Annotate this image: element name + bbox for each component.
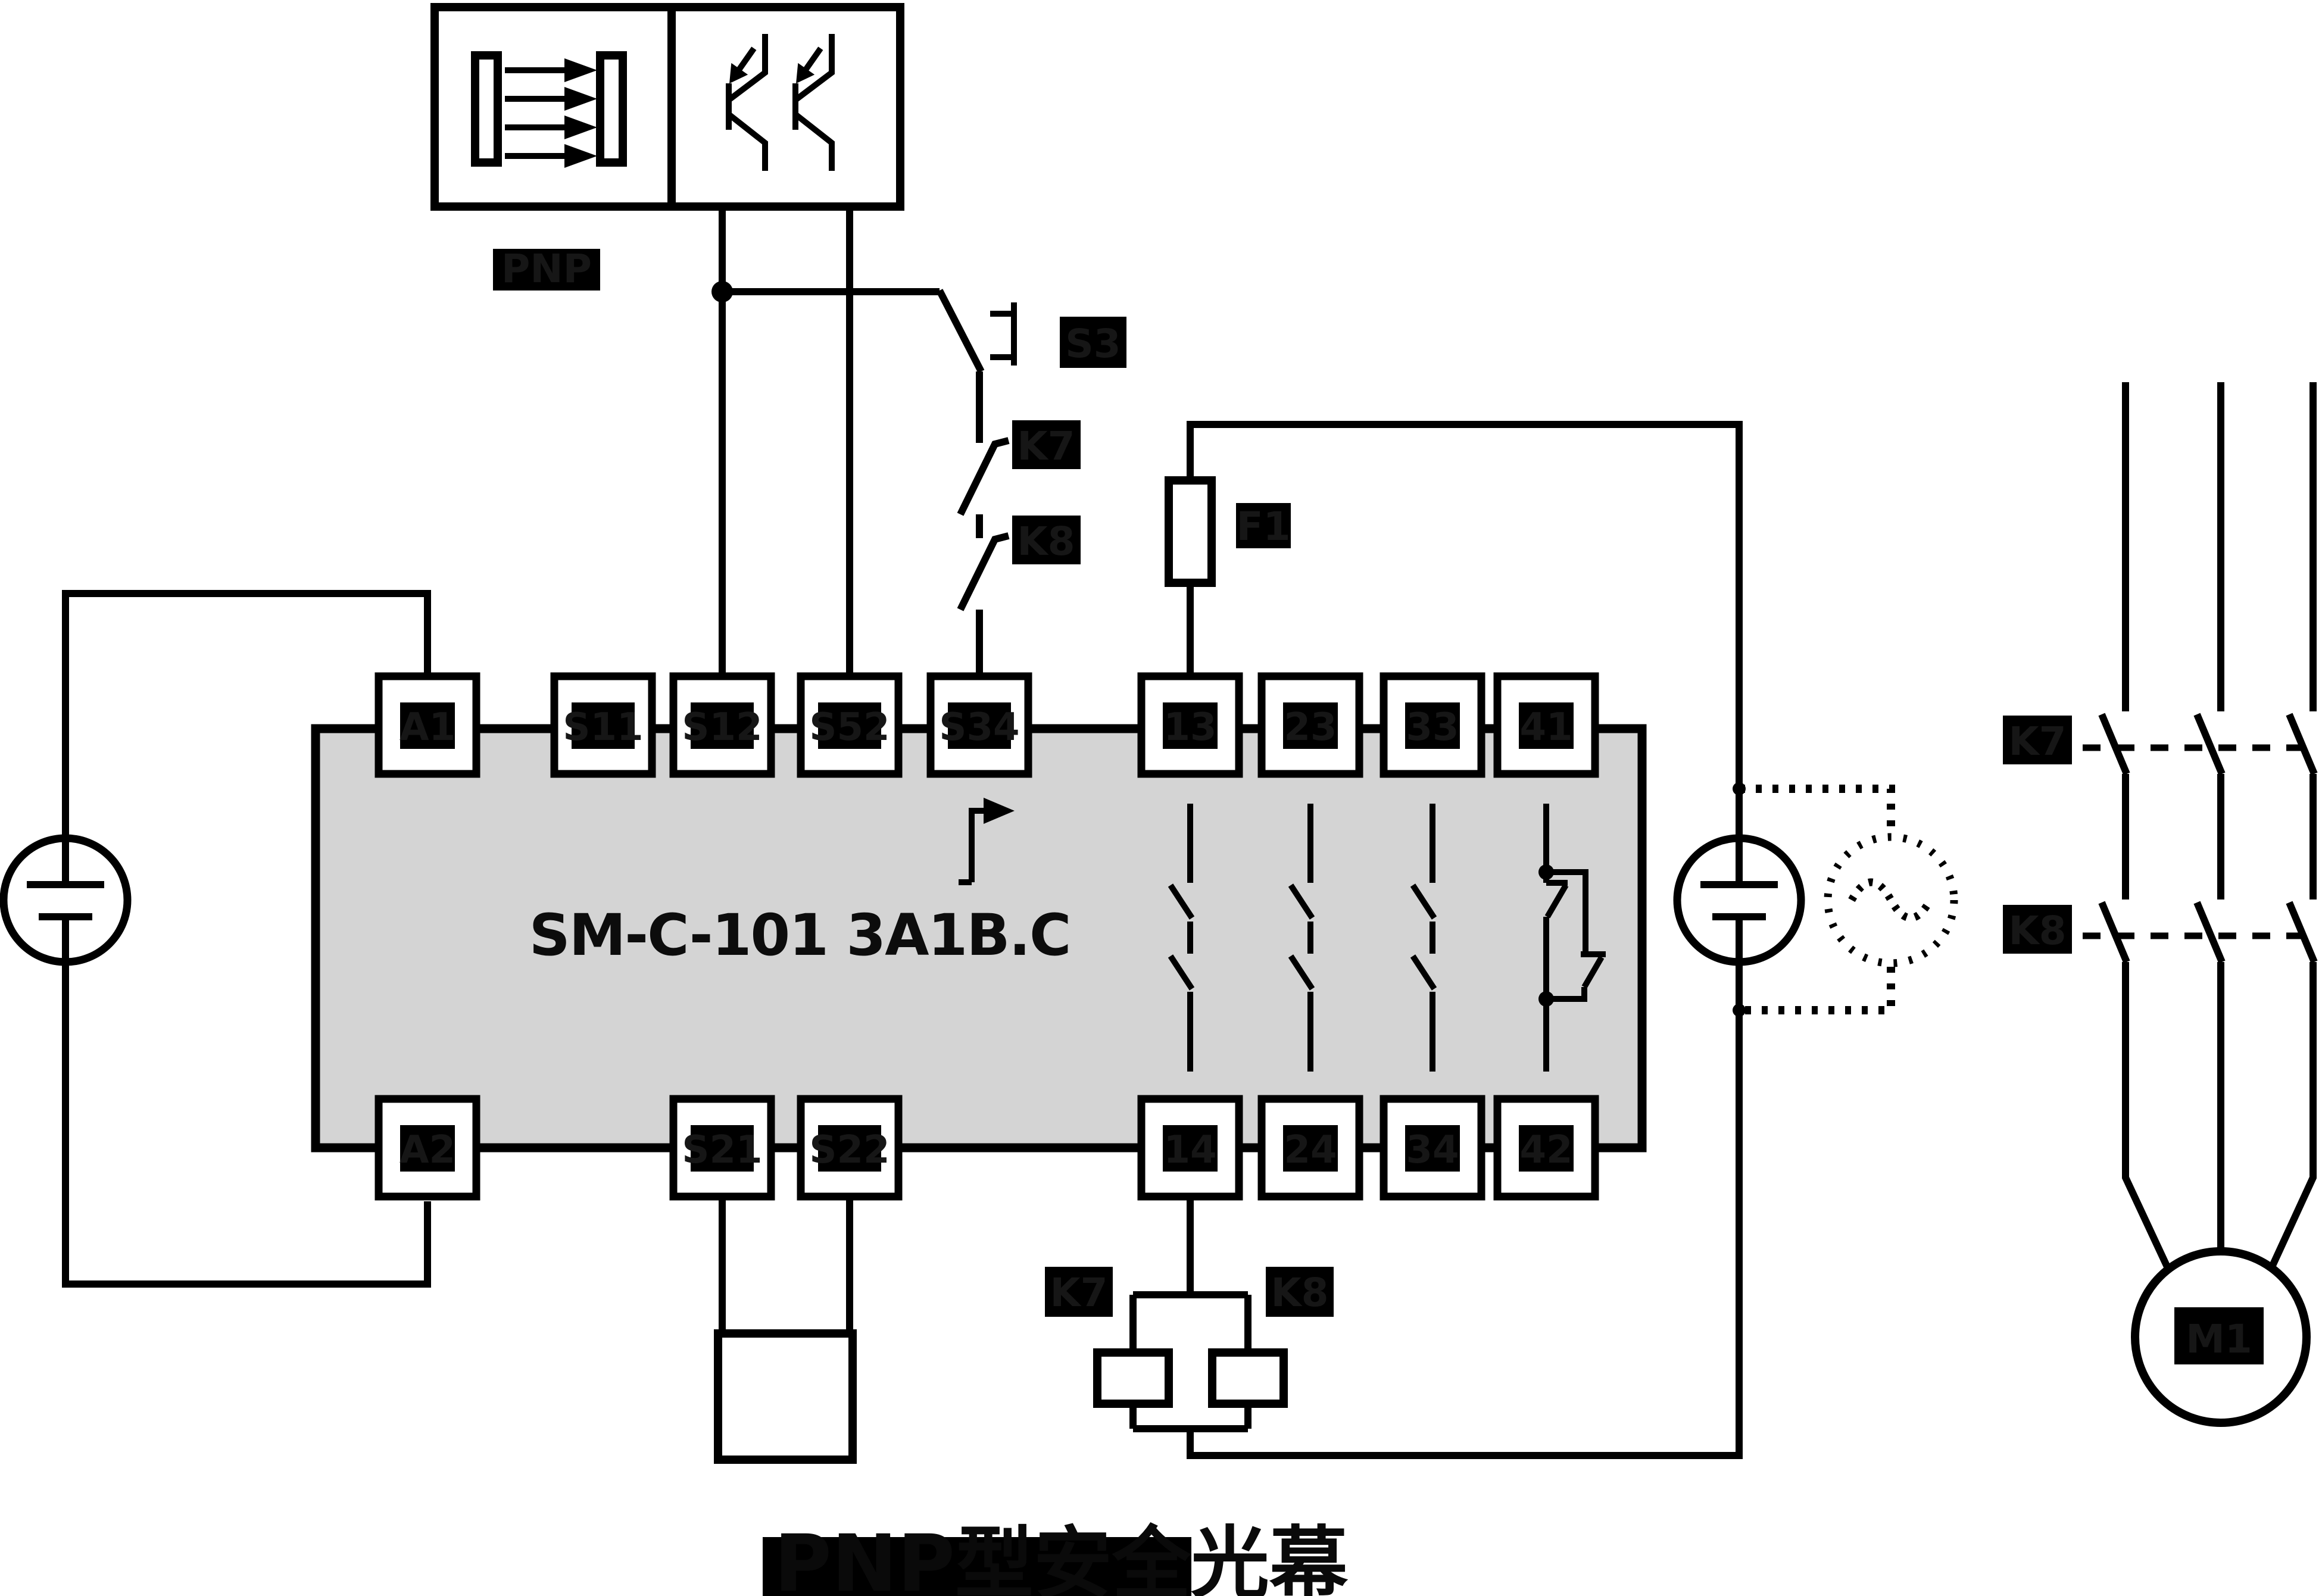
terminal-label: S21 [682,1128,762,1172]
dotted-link-bottom [1739,967,1891,1010]
terminal-23: 23 [1262,676,1359,774]
contactor-coils: K7 K8 [1045,1198,1334,1456]
pnp-label-text: PNP [501,246,592,292]
terminal-s52: S52 [801,676,898,774]
light-curtain-block [435,7,900,207]
coil-wires-top [1133,1198,1248,1353]
terminal-label: S34 [939,705,1019,749]
terminal-41: 41 [1497,676,1595,774]
contactor-k7-label: K7 [2003,716,2072,764]
k8-no-contact-icon [960,536,1009,610]
caption-light-curtain: PNP型安全光幕 [763,1518,1349,1596]
push-button-actuator-icon [990,302,1014,366]
terminal-label: S52 [809,705,890,749]
terminal-label: 23 [1284,705,1337,749]
terminal-34: 34 [1384,1099,1481,1197]
motor-label: M1 [2174,1307,2264,1364]
coil-k7-label: K7 [1045,1267,1113,1317]
reset-button-label: S3 [1060,317,1126,368]
svg-text:K8: K8 [1271,1270,1328,1316]
coil-k8-label: K8 [1266,1267,1334,1317]
svg-text:F1: F1 [1236,504,1290,549]
push-button-lever [940,291,981,371]
k7-feedback-label: K7 [1012,420,1081,469]
curtain-connection-box [718,1198,853,1460]
terminal-a1: A1 [379,676,476,774]
coil-k7-icon [1097,1353,1169,1404]
dotted-junction-bottom [1733,1004,1746,1017]
terminal-label: S11 [563,705,643,749]
module-title: SM-C-101 3A1B.C [529,902,1071,969]
terminal-label: A1 [400,705,455,749]
terminal-label: S22 [809,1128,890,1172]
caption-text: PNP型安全光幕 [774,1518,1349,1596]
dotted-junction-top [1733,782,1746,795]
svg-text:S3: S3 [1065,321,1121,367]
ossd-output-box [672,7,900,207]
k8-feedback-label: K8 [1012,516,1081,564]
reset-chain [940,291,1014,679]
terminal-s12: S12 [673,676,771,774]
terminal-24: 24 [1262,1099,1359,1197]
dotted-link-top [1739,789,1891,833]
terminal-s21: S21 [673,1099,771,1197]
safety-relay-module: SM-C-101 3A1B.C [316,729,1642,1148]
terminal-s34: S34 [931,676,1028,774]
fuse-icon [1169,480,1212,583]
svg-text:K7: K7 [2008,719,2066,764]
curtain-box-icon [718,1333,853,1460]
terminal-s22: S22 [801,1099,898,1197]
motor-power-circuit: K7 K8 M1 [2003,382,2316,1423]
svg-text:K8: K8 [2008,908,2066,954]
terminal-label: 33 [1406,705,1459,749]
emitter-receiver-box [435,7,672,207]
junction-dot [711,281,733,302]
dc-supply-left [4,838,127,962]
terminal-33: 33 [1384,676,1481,774]
coil-wires-bottom [1133,1404,1248,1456]
terminal-label: 24 [1284,1128,1337,1172]
terminal-label: 34 [1406,1128,1459,1172]
terminal-13: 13 [1141,676,1239,774]
terminal-a2: A2 [379,1099,476,1197]
terminal-42: 42 [1497,1099,1595,1197]
terminal-s11: S11 [554,676,652,774]
k7-no-contact-icon [960,441,1009,514]
coil-k8-icon [1212,1353,1284,1404]
dc-supply-right [1677,838,1801,962]
ossd-wires [711,205,940,679]
terminal-label: 42 [1519,1128,1572,1172]
svg-text:K7: K7 [1017,423,1075,469]
fuse-label: F1 [1236,503,1291,549]
svg-text:M1: M1 [2186,1316,2252,1362]
svg-text:K7: K7 [1050,1270,1107,1316]
terminal-label: A2 [400,1128,455,1172]
terminal-label: 14 [1163,1128,1216,1172]
wire-s21-s22 [722,1198,850,1333]
terminal-label: 41 [1519,705,1572,749]
contactor-k8-label: K8 [2003,905,2072,954]
terminal-label: 13 [1163,705,1216,749]
wiring-diagram: SM-C-101 3A1B.C A1 S11 [0,0,2322,1596]
svg-text:K8: K8 [1017,519,1075,564]
terminal-label: S12 [682,705,762,749]
pnp-type-label: PNP [493,246,600,292]
ac-source-icon [1828,837,1954,963]
terminal-14: 14 [1141,1099,1239,1197]
